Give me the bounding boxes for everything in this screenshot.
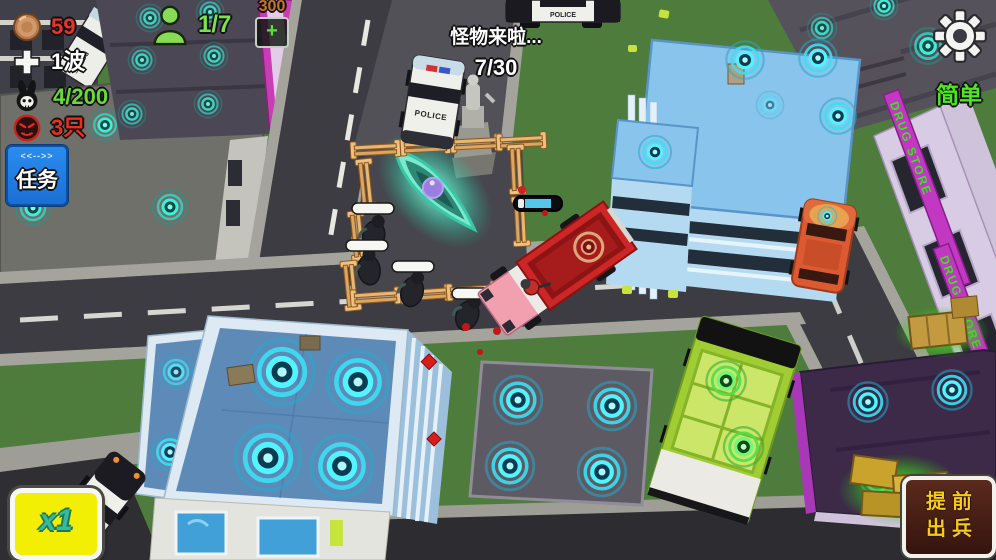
population-counter: 1/7: [150, 4, 231, 46]
deploy-early-button[interactable]: 提前 出兵: [902, 476, 996, 558]
mission-label: 任务: [8, 164, 66, 194]
coin-counter: 59: [12, 12, 75, 42]
population-value: 1/7: [198, 11, 231, 39]
wave-announcement: 怪物来啦... 7/30: [400, 22, 592, 81]
rabbit-skull-icon: [10, 80, 44, 114]
wave-counter: 1波: [12, 47, 85, 77]
coin-icon: [12, 12, 42, 42]
settings-button[interactable]: [932, 8, 988, 64]
monster-value: 3只: [51, 117, 85, 139]
gear-icon: [932, 8, 988, 64]
monster-counter: 3只: [12, 113, 85, 143]
difficulty-badge: 简单: [924, 76, 994, 110]
supply-add-button[interactable]: +: [255, 17, 289, 48]
person-icon: [150, 4, 190, 46]
monster-head-icon: [12, 113, 42, 143]
announcement-title: 怪物来啦...: [400, 22, 592, 49]
mission-button[interactable]: <<-->> 任务: [6, 145, 68, 206]
hud-layer: 59 1波 4/200 3只 1/7: [0, 0, 996, 560]
game-viewport: POLICE: [0, 0, 996, 560]
heal-cross-icon: [12, 47, 42, 77]
mission-decoration: <<-->>: [8, 151, 66, 161]
deploy-line2: 出兵: [912, 519, 992, 540]
announcement-progress: 7/30: [400, 55, 592, 81]
wave-value: 1波: [51, 51, 85, 73]
kill-value: 4/200: [53, 86, 108, 108]
supply-value: 300: [250, 0, 294, 16]
kill-counter: 4/200: [10, 80, 108, 114]
coin-value: 59: [51, 16, 75, 38]
supply-counter: 300 +: [250, 0, 294, 48]
deploy-line1: 提前: [912, 492, 992, 513]
game-speed-button[interactable]: x1: [10, 488, 102, 560]
